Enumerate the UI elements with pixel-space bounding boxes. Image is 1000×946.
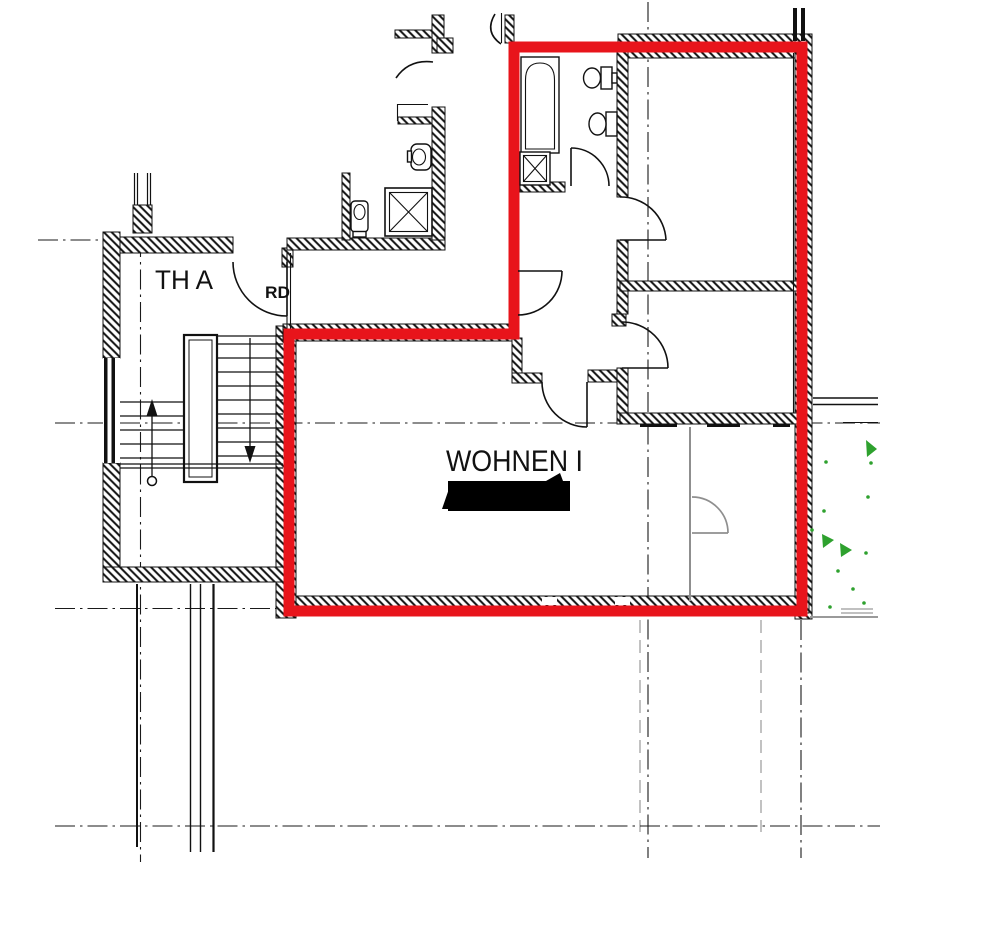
axis-lines — [38, 2, 880, 862]
neighbour-bathroom-fixtures — [351, 144, 432, 237]
shower-icon — [385, 188, 432, 236]
floor-plan-page: TH A RD WOHNEN I — [0, 0, 1000, 946]
toilet-icon — [408, 144, 432, 170]
door-unit-bathroom — [571, 148, 609, 186]
projection-lines — [137, 584, 214, 852]
staircase-door-label: RD — [265, 283, 290, 302]
door-neighbour-bath — [396, 62, 433, 78]
staircase — [120, 335, 283, 486]
door-hall-to-living — [542, 382, 587, 427]
wall-continuation-top-left — [135, 173, 151, 205]
door-partition — [692, 497, 728, 533]
toilet-icon — [351, 201, 368, 237]
living-room-label: WOHNEN I — [446, 445, 583, 478]
glass-partition — [690, 427, 728, 601]
staircase-label: TH A — [155, 265, 213, 295]
door-room-top-right — [620, 197, 666, 240]
vegetation-icons — [810, 440, 877, 609]
window-stairwell — [104, 358, 108, 463]
door-room-middle-right — [622, 322, 668, 368]
bathtub-icon — [521, 57, 559, 153]
shower-icon — [520, 152, 550, 185]
door-unit-entrance — [518, 271, 562, 315]
bidet-icon — [589, 112, 617, 136]
terrace-lines — [810, 398, 878, 617]
door-corridor-top — [491, 14, 501, 44]
stair-direction-up-arrow — [147, 399, 158, 486]
floor-plan-drawing: TH A RD WOHNEN I — [0, 0, 1000, 946]
window-top-right — [793, 8, 797, 41]
redaction-box — [442, 473, 570, 511]
toilet-icon — [584, 67, 618, 89]
